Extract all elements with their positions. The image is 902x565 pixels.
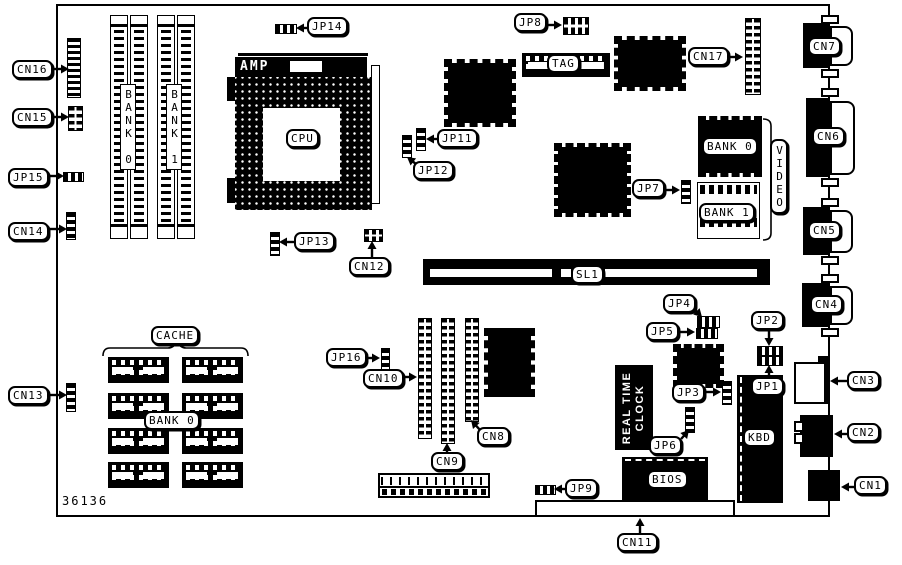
label-tag: TAG bbox=[547, 54, 580, 73]
label-video-bank0: BANK 0 bbox=[702, 137, 758, 156]
label-cache: CACHE bbox=[151, 326, 199, 345]
label-cn8: CN8 bbox=[477, 427, 510, 446]
label-sl1: SL1 bbox=[571, 265, 604, 284]
label-cn17: CN17 bbox=[688, 47, 729, 66]
label-cn16: CN16 bbox=[12, 60, 53, 79]
label-cn1: CN1 bbox=[854, 476, 887, 495]
label-jp9: JP9 bbox=[565, 479, 598, 498]
label-jp15: JP15 bbox=[8, 168, 49, 187]
label-cn7: CN7 bbox=[808, 37, 841, 56]
label-cn4: CN4 bbox=[810, 295, 843, 314]
label-jp7: JP7 bbox=[632, 179, 665, 198]
label-jp5: JP5 bbox=[646, 322, 679, 341]
label-jp12: JP12 bbox=[413, 161, 454, 180]
label-jp3: JP3 bbox=[672, 383, 705, 402]
label-jp16: JP16 bbox=[326, 348, 367, 367]
label-cn2: CN2 bbox=[847, 423, 880, 442]
label-cn11: CN11 bbox=[617, 533, 658, 552]
label-jp1: JP1 bbox=[751, 377, 784, 396]
label-video-bank1: BANK 1 bbox=[699, 203, 755, 222]
label-cn12: CN12 bbox=[349, 257, 390, 276]
label-simm-bank0: BANK 0 bbox=[120, 84, 136, 170]
label-jp14: JP14 bbox=[307, 17, 348, 36]
label-jp13: JP13 bbox=[294, 232, 335, 251]
label-jp11: JP11 bbox=[437, 129, 478, 148]
label-cn5: CN5 bbox=[808, 221, 841, 240]
label-cn14: CN14 bbox=[8, 222, 49, 241]
label-kbd: KBD bbox=[743, 428, 776, 447]
motherboard-diagram: AMP REAL TIME CLOCK bbox=[0, 0, 902, 565]
label-cn10: CN10 bbox=[363, 369, 404, 388]
label-bios: BIOS bbox=[647, 470, 688, 489]
label-jp6: JP6 bbox=[649, 436, 682, 455]
label-cpu: CPU bbox=[286, 129, 319, 148]
label-jp4: JP4 bbox=[663, 294, 696, 313]
label-cn9: CN9 bbox=[431, 452, 464, 471]
label-video: VIDEO bbox=[770, 139, 788, 214]
label-jp8: JP8 bbox=[514, 13, 547, 32]
label-cn15: CN15 bbox=[12, 108, 53, 127]
label-jp2: JP2 bbox=[751, 311, 784, 330]
label-cn13: CN13 bbox=[8, 386, 49, 405]
label-cn6: CN6 bbox=[812, 127, 845, 146]
label-cache-bank0: BANK 0 bbox=[144, 411, 200, 430]
label-cn3: CN3 bbox=[847, 371, 880, 390]
label-simm-bank1: BANK 1 bbox=[166, 84, 182, 170]
